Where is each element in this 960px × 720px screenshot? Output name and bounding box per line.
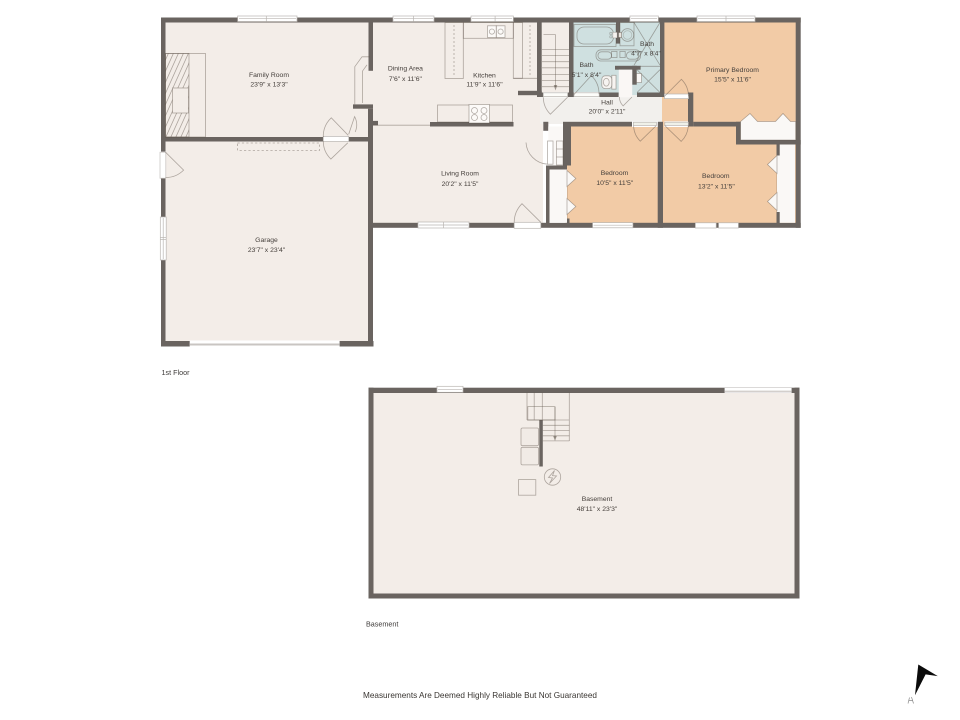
svg-text:7'6" x 11'6": 7'6" x 11'6" (389, 76, 423, 83)
svg-text:Garage: Garage (255, 237, 278, 244)
svg-text:48'11" x 23'3": 48'11" x 23'3" (577, 506, 618, 513)
svg-text:4'7" x 8'4": 4'7" x 8'4" (631, 51, 661, 58)
svg-text:23'7" x 23'4": 23'7" x 23'4" (248, 247, 286, 254)
svg-text:Primary Bedroom: Primary Bedroom (706, 67, 759, 74)
svg-text:1st Floor: 1st Floor (162, 368, 191, 377)
svg-text:Family Room: Family Room (249, 72, 289, 79)
svg-text:23'9" x 13'3": 23'9" x 13'3" (250, 82, 288, 89)
svg-text:15'5" x 11'6": 15'5" x 11'6" (714, 77, 751, 84)
svg-text:10'5" x 11'5": 10'5" x 11'5" (596, 180, 633, 187)
svg-text:Basement: Basement (366, 620, 398, 629)
svg-text:20'0" x 2'11": 20'0" x 2'11" (589, 109, 626, 116)
svg-text:5'1" x 8'4": 5'1" x 8'4" (572, 72, 602, 79)
svg-text:Bedroom: Bedroom (601, 170, 629, 177)
svg-text:Bath: Bath (640, 41, 654, 48)
svg-text:20'2" x 11'5": 20'2" x 11'5" (442, 181, 479, 188)
svg-text:Bedroom: Bedroom (702, 173, 730, 180)
svg-text:Kitchen: Kitchen (473, 72, 496, 79)
svg-text:Living Room: Living Room (441, 170, 479, 177)
svg-text:Measurements Are Deemed Highly: Measurements Are Deemed Highly Reliable … (363, 691, 597, 700)
svg-text:13'2" x 11'5": 13'2" x 11'5" (698, 184, 735, 191)
svg-text:11'9" x 11'6": 11'9" x 11'6" (466, 82, 503, 89)
svg-text:Basement: Basement (582, 496, 613, 503)
svg-text:Dining Area: Dining Area (388, 66, 423, 73)
svg-text:Bath: Bath (580, 62, 594, 69)
svg-text:Hall: Hall (601, 99, 613, 106)
